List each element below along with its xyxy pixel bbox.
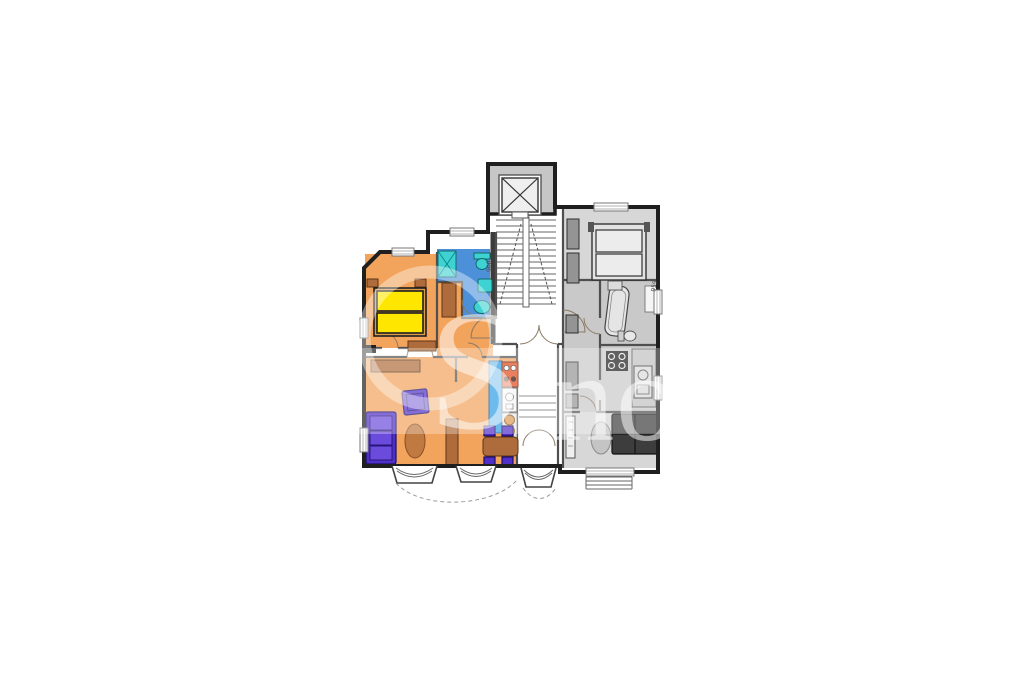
elevator xyxy=(488,164,555,218)
entrance-steps xyxy=(586,477,632,489)
window xyxy=(586,468,634,476)
window xyxy=(654,290,662,314)
washbasin-icon xyxy=(608,281,622,290)
bay-window xyxy=(392,466,437,483)
dimension-label-left: 900 xyxy=(486,260,493,272)
wardrobe xyxy=(567,253,579,283)
double-bed-gray xyxy=(588,222,650,280)
floorplan-drawing: 900 959 S n o xyxy=(0,0,1024,683)
floorplan-page: 900 959 S n o xyxy=(0,0,1024,683)
watermark-letter: o xyxy=(616,330,679,468)
watermark-letter: S xyxy=(428,276,524,466)
watermark-letter: n xyxy=(552,330,615,468)
elevator-door xyxy=(512,212,528,218)
nightstand xyxy=(415,279,426,287)
bay-window xyxy=(456,466,496,482)
window xyxy=(450,228,474,236)
elevator-icon xyxy=(502,178,538,212)
nightstand xyxy=(367,279,378,287)
window xyxy=(594,203,628,211)
bay-window xyxy=(521,468,556,487)
wardrobe xyxy=(567,219,579,249)
window xyxy=(392,248,414,256)
